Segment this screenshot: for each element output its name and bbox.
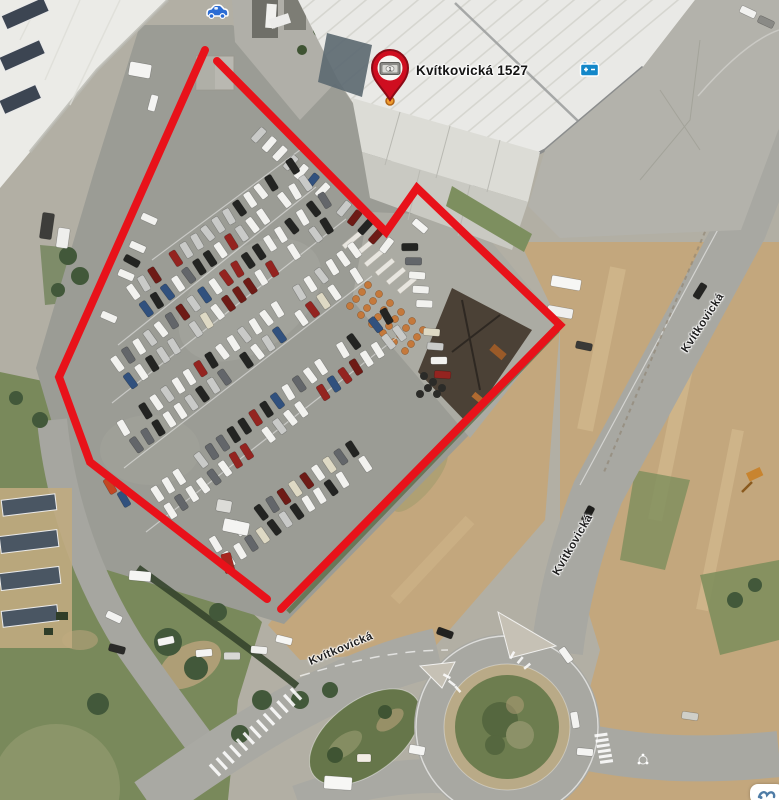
marker-number: 1 [388,67,391,73]
battery-icon[interactable] [579,60,600,83]
map-attribution-button[interactable] [750,784,779,800]
map-viewport[interactable]: 1 Kvítkovická 1527 Kvítkovická Kvítkovic… [0,0,779,800]
solar-farm [0,488,72,648]
car-icon[interactable] [204,2,229,25]
map-logo-icon [750,784,779,800]
marker-label[interactable]: Kvítkovická 1527 [416,63,528,78]
aerial-basemap: 1 [0,0,779,800]
banknote-icon: 1 [380,63,400,75]
